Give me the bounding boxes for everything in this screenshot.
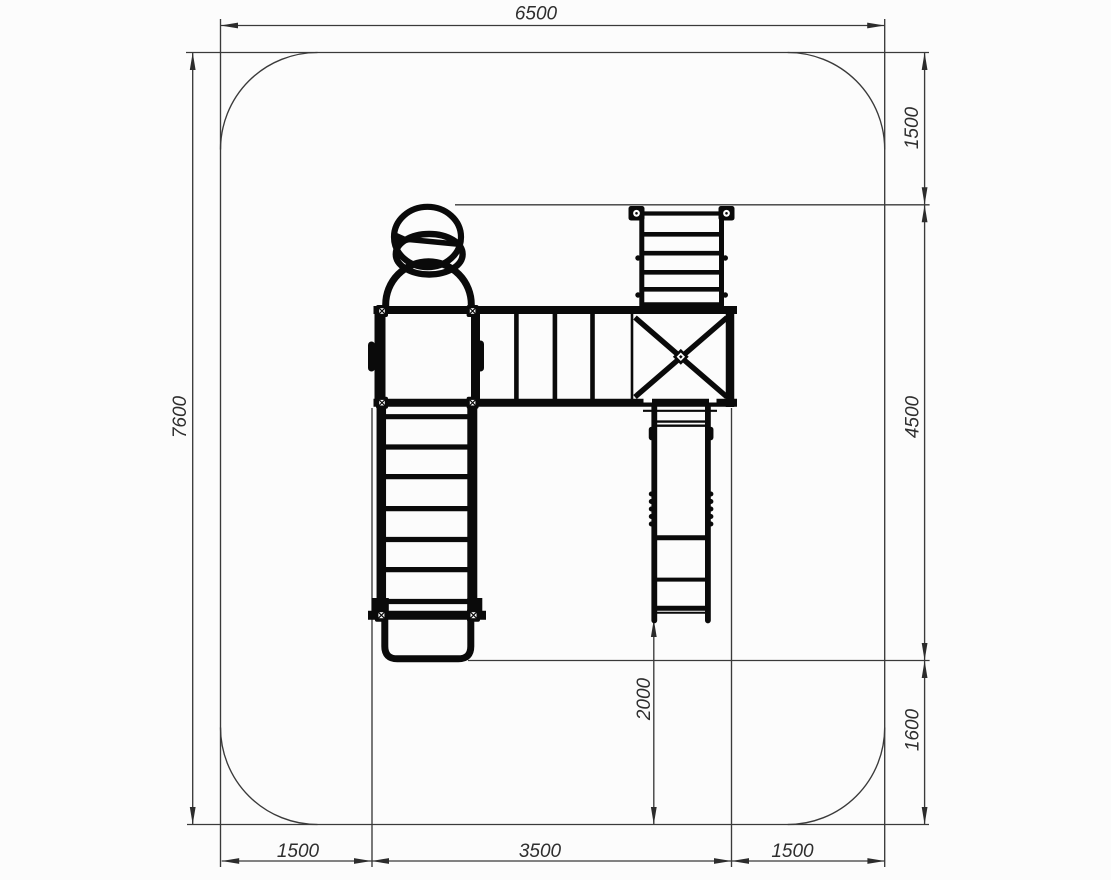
svg-text:2000: 2000 xyxy=(634,677,655,721)
svg-text:1500: 1500 xyxy=(277,841,320,862)
svg-text:1500: 1500 xyxy=(771,841,814,862)
svg-text:4500: 4500 xyxy=(903,395,924,438)
svg-text:1600: 1600 xyxy=(903,708,924,751)
svg-text:1500: 1500 xyxy=(902,106,923,149)
svg-text:6500: 6500 xyxy=(515,4,558,25)
svg-text:7600: 7600 xyxy=(170,395,191,438)
svg-text:3500: 3500 xyxy=(519,841,562,862)
